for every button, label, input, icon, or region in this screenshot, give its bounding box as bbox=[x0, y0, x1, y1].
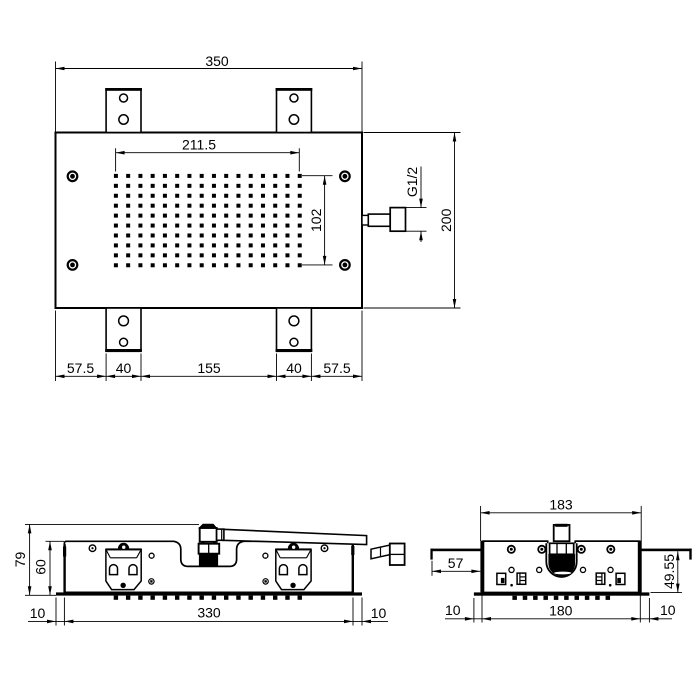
svg-text:155: 155 bbox=[197, 360, 221, 376]
svg-text:40: 40 bbox=[116, 360, 132, 376]
svg-text:10: 10 bbox=[660, 602, 676, 618]
svg-text:79: 79 bbox=[12, 552, 28, 568]
svg-text:57: 57 bbox=[448, 555, 464, 571]
svg-text:49.55: 49.55 bbox=[661, 554, 677, 589]
svg-text:40: 40 bbox=[286, 360, 302, 376]
svg-text:102: 102 bbox=[308, 208, 324, 232]
svg-text:10: 10 bbox=[445, 602, 461, 618]
svg-text:10: 10 bbox=[30, 605, 46, 621]
svg-text:183: 183 bbox=[549, 496, 573, 512]
svg-text:180: 180 bbox=[549, 602, 573, 618]
svg-text:60: 60 bbox=[33, 559, 49, 575]
svg-text:350: 350 bbox=[205, 53, 229, 69]
svg-text:330: 330 bbox=[197, 604, 221, 620]
svg-text:200: 200 bbox=[438, 208, 454, 232]
svg-text:211.5: 211.5 bbox=[182, 137, 216, 153]
svg-text:G1/2: G1/2 bbox=[404, 167, 420, 198]
svg-text:57.5: 57.5 bbox=[323, 360, 350, 376]
svg-text:10: 10 bbox=[371, 605, 387, 621]
svg-text:57.5: 57.5 bbox=[67, 360, 94, 376]
